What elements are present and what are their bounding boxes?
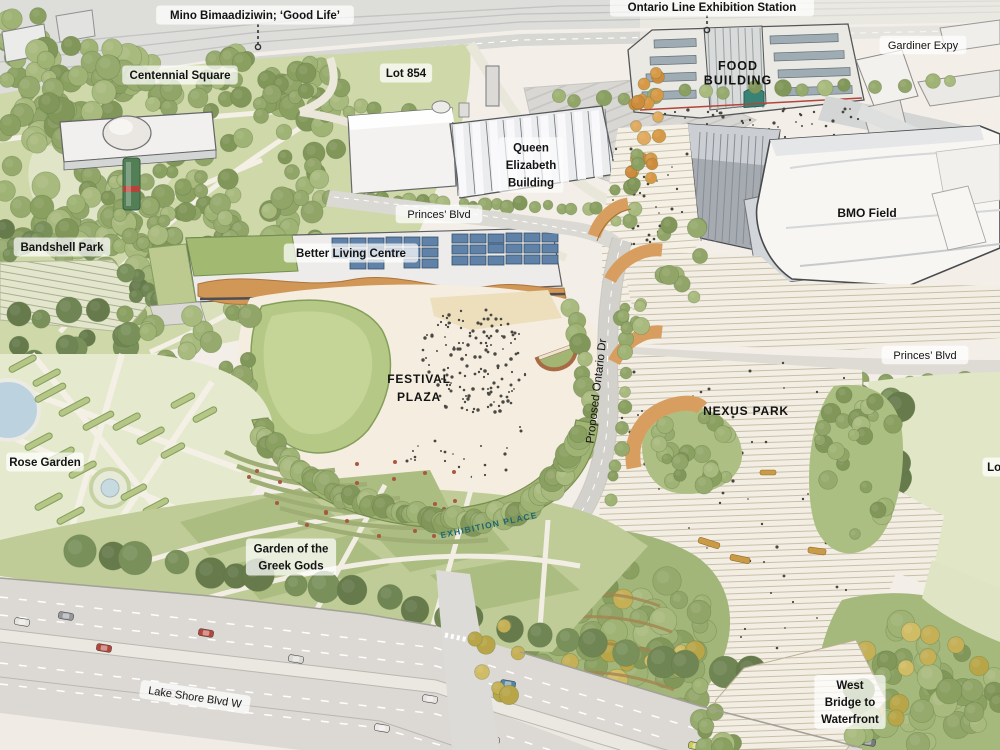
svg-text:Elizabeth: Elizabeth	[506, 160, 556, 172]
svg-text:Ontario Line Exhibition Statio: Ontario Line Exhibition Station	[628, 2, 797, 14]
svg-text:Lot 854: Lot 854	[386, 68, 427, 80]
svg-text:Bandshell Park: Bandshell Park	[20, 242, 104, 254]
svg-text:Waterfront: Waterfront	[821, 714, 879, 726]
svg-text:BMO Field: BMO Field	[837, 206, 896, 220]
svg-text:West: West	[836, 680, 863, 692]
svg-text:Bridge to: Bridge to	[825, 697, 875, 709]
svg-text:Better Living Centre: Better Living Centre	[296, 248, 406, 260]
svg-text:NEXUS PARK: NEXUS PARK	[703, 404, 789, 418]
svg-text:Princes’ Blvd: Princes’ Blvd	[893, 350, 956, 362]
svg-text:Centennial Square: Centennial Square	[130, 70, 231, 82]
svg-text:Lot: Lot	[987, 462, 1000, 474]
svg-text:FESTIVAL: FESTIVAL	[387, 372, 451, 386]
svg-text:BUILDING: BUILDING	[704, 74, 772, 88]
svg-text:Garden of the: Garden of the	[254, 544, 329, 556]
svg-text:Gardiner Expy: Gardiner Expy	[888, 40, 959, 52]
svg-text:Greek Gods: Greek Gods	[258, 561, 323, 573]
svg-text:PLAZA: PLAZA	[397, 390, 441, 404]
svg-text:Princes’ Blvd: Princes’ Blvd	[407, 209, 470, 221]
svg-text:Mino Bimaadiziwin; ‘Good Life’: Mino Bimaadiziwin; ‘Good Life’	[170, 10, 340, 22]
svg-text:Queen: Queen	[513, 143, 549, 155]
svg-text:FOOD: FOOD	[718, 59, 758, 73]
svg-text:Building: Building	[508, 178, 554, 190]
svg-text:Rose Garden: Rose Garden	[9, 457, 81, 469]
